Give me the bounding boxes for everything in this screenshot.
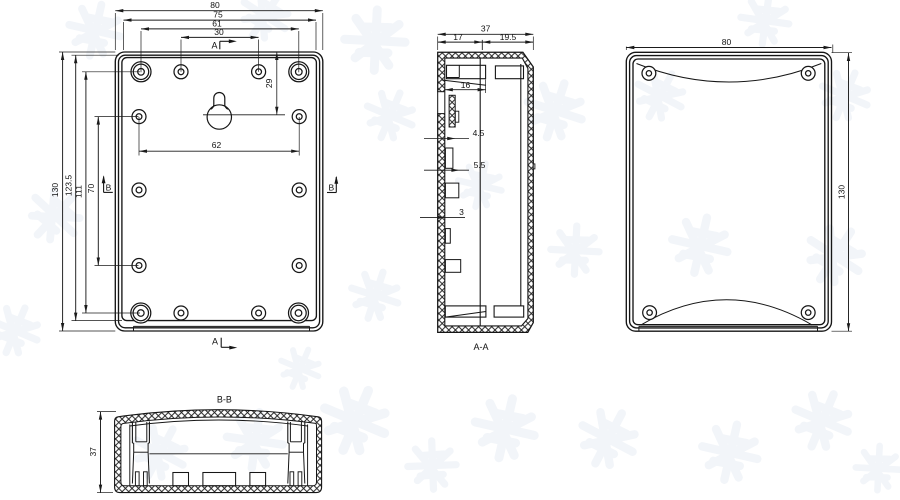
svg-text:B-B: B-B (217, 395, 232, 405)
svg-text:30: 30 (214, 27, 224, 37)
svg-text:4.5: 4.5 (473, 128, 485, 138)
svg-text:B: B (328, 182, 334, 192)
svg-text:29: 29 (264, 78, 274, 88)
svg-text:B: B (106, 182, 112, 192)
svg-text:16: 16 (461, 80, 471, 90)
svg-text:62: 62 (212, 140, 222, 150)
svg-text:A: A (212, 337, 218, 347)
svg-text:111: 111 (74, 185, 84, 198)
svg-text:123.5: 123.5 (63, 175, 73, 197)
svg-text:70: 70 (86, 184, 96, 194)
svg-text:A: A (211, 40, 217, 50)
svg-text:3: 3 (459, 207, 464, 217)
svg-text:130: 130 (50, 183, 60, 197)
svg-text:19.5: 19.5 (500, 32, 517, 42)
svg-text:37: 37 (481, 24, 491, 34)
svg-text:5.5: 5.5 (474, 160, 486, 170)
svg-text:37: 37 (88, 447, 98, 457)
svg-text:80: 80 (722, 37, 732, 47)
svg-text:130: 130 (836, 185, 846, 199)
svg-text:17: 17 (453, 32, 463, 42)
svg-text:A-A: A-A (473, 342, 488, 352)
